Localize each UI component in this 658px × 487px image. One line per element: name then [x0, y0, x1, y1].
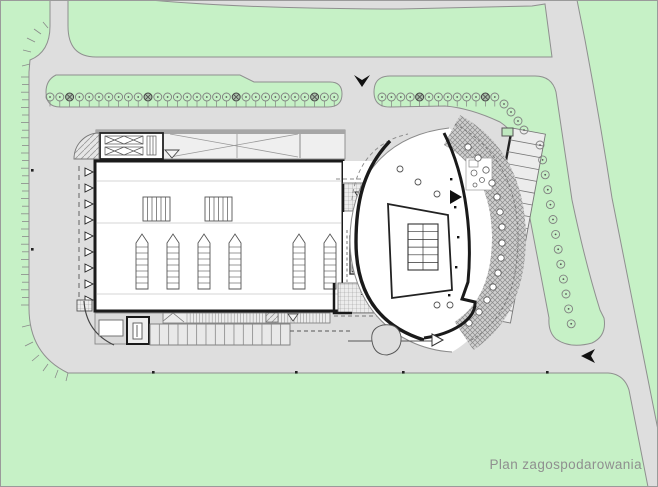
- main-building: [74, 130, 350, 345]
- boundary-dot: [295, 371, 298, 374]
- bollard-icon: [495, 270, 501, 276]
- boundary-dot: [31, 248, 34, 251]
- utility-box: [502, 128, 513, 136]
- boundary-dot: [152, 371, 155, 374]
- pavilion-furniture: [408, 224, 438, 270]
- bollard-icon: [475, 155, 481, 161]
- bollard-icon: [499, 240, 505, 246]
- bollard-icon: [484, 297, 490, 303]
- bollard-icon: [465, 144, 471, 150]
- bollard-icon: [498, 255, 504, 261]
- bollard-icon: [499, 224, 505, 230]
- south-dock-strip: [163, 313, 330, 323]
- traffic-island: [372, 325, 401, 355]
- site-plan-canvas: Plan zagospodarowania: [0, 0, 658, 487]
- parking-south: [150, 324, 290, 345]
- bollard-icon: [489, 180, 495, 186]
- bollard-icon: [483, 167, 489, 173]
- boundary-dot: [402, 371, 405, 374]
- boundary-dot: [31, 169, 34, 172]
- green-north-strip: [68, 0, 552, 57]
- main-hall: [95, 161, 343, 311]
- plan-title: Plan zagospodarowania: [489, 457, 642, 472]
- boundary-dot: [546, 371, 549, 374]
- bollard-icon: [490, 284, 496, 290]
- site-plan-svg: Plan zagospodarowania: [0, 0, 658, 487]
- bollard-icon: [476, 309, 482, 315]
- bollard-icon: [497, 209, 503, 215]
- west-dock-markers: [85, 168, 93, 304]
- bollard-icon: [494, 194, 500, 200]
- promenade-entry: [466, 158, 492, 190]
